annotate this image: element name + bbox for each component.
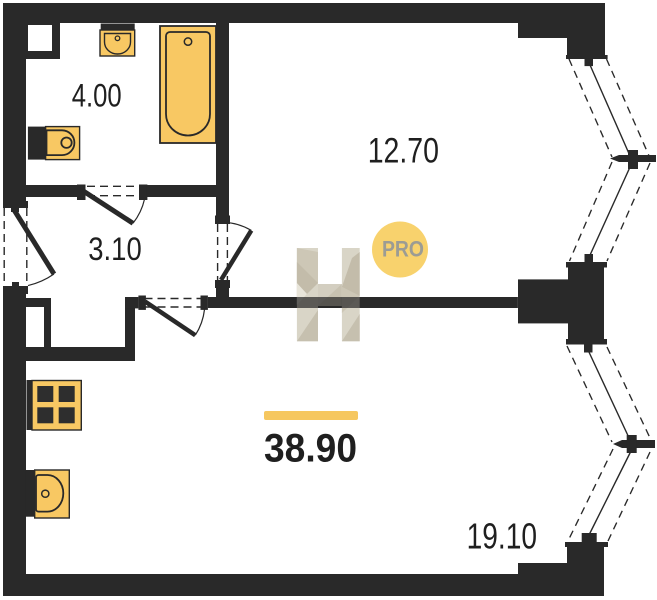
svg-text:3.10: 3.10	[88, 231, 141, 267]
svg-text:38.90: 38.90	[264, 427, 357, 471]
svg-text:19.10: 19.10	[467, 516, 537, 557]
svg-text:12.70: 12.70	[368, 132, 439, 171]
svg-text:4.00: 4.00	[72, 78, 122, 114]
svg-text:PRO: PRO	[382, 237, 424, 262]
